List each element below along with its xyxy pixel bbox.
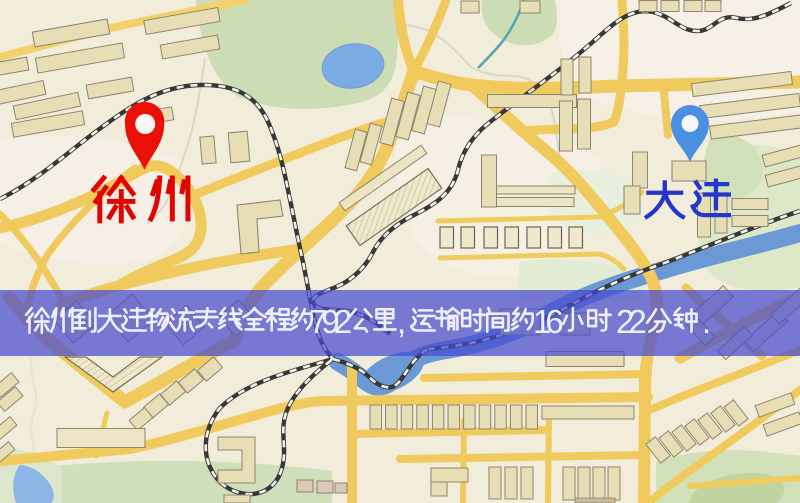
svg-text:792: 792 xyxy=(309,303,351,340)
svg-text:.: . xyxy=(702,303,711,340)
svg-text:,: , xyxy=(397,303,406,340)
